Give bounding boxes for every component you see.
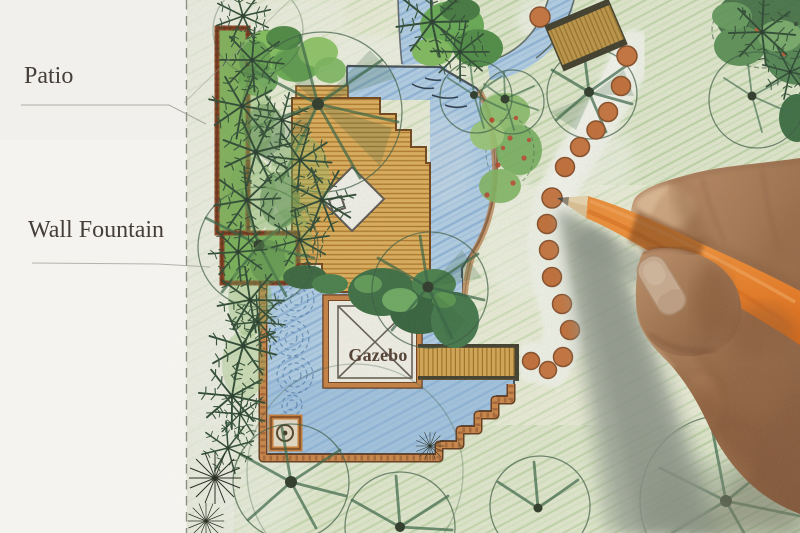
svg-text:Patio: Patio xyxy=(24,63,73,89)
svg-text:Wall Fountain: Wall Fountain xyxy=(28,217,164,243)
